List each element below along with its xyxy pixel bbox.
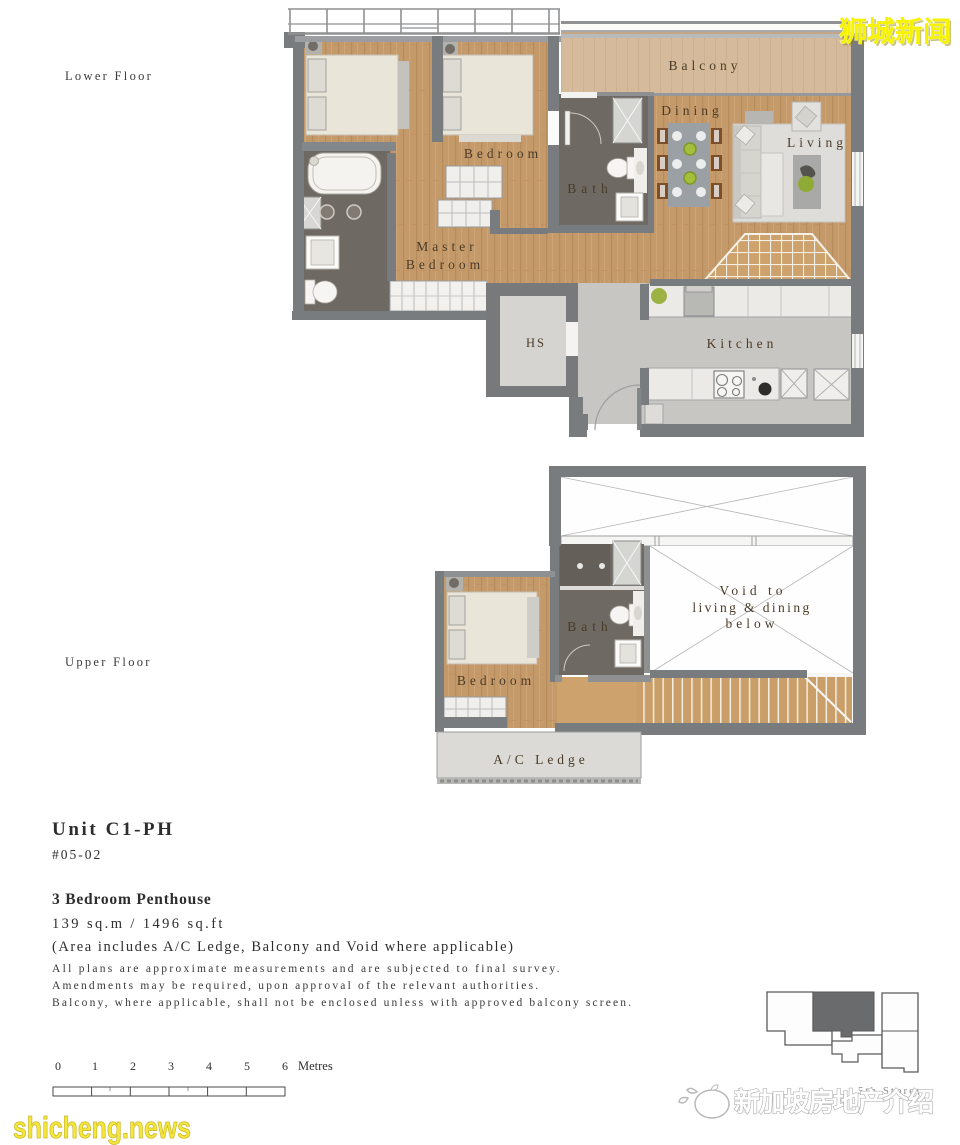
svg-text:Unit C1-PH: Unit C1-PH (52, 819, 175, 840)
svg-text:Balcony: Balcony (669, 58, 742, 73)
svg-text:Void to: Void to (719, 583, 786, 598)
svg-text:(Area includes A/C Ledge, Balc: (Area includes A/C Ledge, Balcony and Vo… (52, 939, 515, 955)
svg-text:2: 2 (130, 1059, 136, 1073)
svg-text:6: 6 (282, 1059, 288, 1073)
svg-text:Master: Master (416, 239, 478, 254)
svg-text:Metres: Metres (298, 1059, 333, 1073)
svg-text:#05-02: #05-02 (52, 847, 102, 862)
svg-text:below: below (726, 616, 779, 631)
svg-text:Kitchen: Kitchen (707, 336, 778, 351)
svg-text:0: 0 (55, 1059, 61, 1073)
svg-text:5th Storey: 5th Storey (858, 1085, 924, 1097)
svg-text:Bath: Bath (567, 181, 613, 196)
svg-text:3 Bedroom Penthouse: 3 Bedroom Penthouse (52, 891, 212, 908)
svg-text:A/C Ledge: A/C Ledge (493, 752, 589, 767)
svg-text:Bath: Bath (567, 619, 613, 634)
svg-text:HS: HS (526, 336, 546, 350)
svg-text:Balcony, where applicable, sha: Balcony, where applicable, shall not be … (52, 997, 633, 1009)
svg-text:Amendments may be required, up: Amendments may be required, upon approva… (52, 980, 540, 992)
svg-text:Dining: Dining (661, 103, 723, 118)
svg-text:Living: Living (787, 135, 847, 150)
svg-text:Bedroom: Bedroom (457, 673, 535, 688)
svg-text:3: 3 (168, 1059, 174, 1073)
svg-text:Bedroom: Bedroom (406, 257, 484, 272)
svg-text:139 sq.m / 1496 sq.ft: 139 sq.m / 1496 sq.ft (52, 916, 225, 932)
svg-text:5: 5 (244, 1059, 250, 1073)
svg-text:4: 4 (206, 1059, 212, 1073)
svg-text:Lower Floor: Lower Floor (65, 69, 153, 83)
svg-text:Upper Floor: Upper Floor (65, 655, 152, 669)
svg-text:1: 1 (92, 1059, 98, 1073)
svg-text:狮城新闻: 狮城新闻 (839, 16, 951, 47)
svg-text:living & dining: living & dining (692, 600, 811, 615)
svg-text:Bedroom: Bedroom (464, 146, 542, 161)
svg-text:All plans are approximate meas: All plans are approximate measurements a… (52, 963, 562, 975)
